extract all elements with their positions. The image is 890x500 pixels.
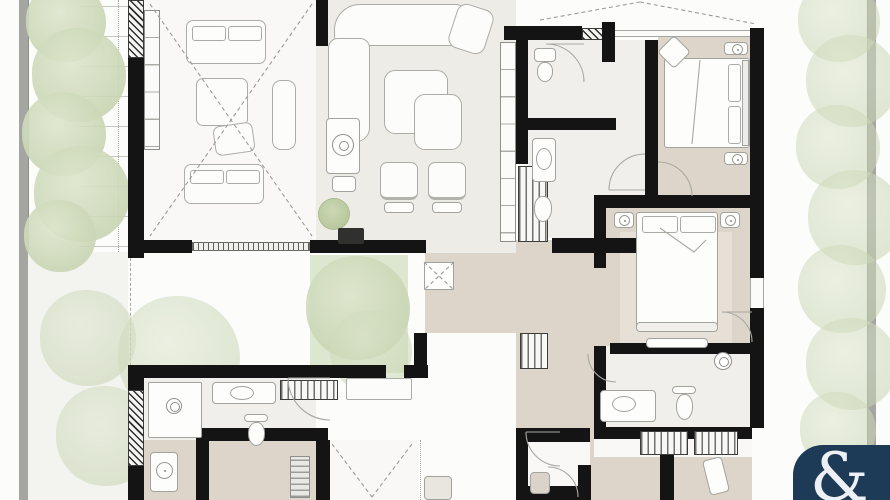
side-table-icon <box>424 476 452 500</box>
wardrobe-hangers <box>520 333 548 369</box>
shelf-icon <box>332 176 356 192</box>
cabinet-run <box>144 10 160 150</box>
void-dotted-edge <box>420 440 422 500</box>
wall-segment <box>602 22 615 62</box>
shower-head-icon <box>714 352 732 370</box>
armchair-icon <box>380 162 418 200</box>
shaft-box <box>424 262 454 290</box>
sofa-cushion <box>226 170 260 184</box>
cistern-icon <box>672 386 696 394</box>
storage-box <box>530 472 550 494</box>
sliding-door-hatch <box>192 242 310 251</box>
ottoman-icon <box>384 202 414 213</box>
pillow-icon <box>728 64 741 102</box>
cistern-icon <box>534 48 556 62</box>
window-hatch <box>128 390 144 466</box>
wall-segment <box>196 441 209 500</box>
lamp-icon <box>732 154 743 165</box>
window-strip <box>615 30 755 37</box>
lamp-icon <box>619 215 630 226</box>
cistern-icon <box>244 414 268 422</box>
decor-target-icon <box>332 134 354 156</box>
wall-segment <box>310 240 426 253</box>
brand-logo: & <box>793 445 890 500</box>
lamp-icon <box>732 44 743 55</box>
wall-segment <box>528 118 616 130</box>
basin-icon <box>612 396 636 412</box>
floor-plan-image: & <box>0 0 890 500</box>
washer-drum-icon <box>156 462 173 479</box>
bench-icon <box>646 338 708 348</box>
toilet-icon <box>676 394 693 420</box>
wall-segment <box>128 378 144 390</box>
wall-segment <box>414 333 427 378</box>
headboard <box>742 60 749 146</box>
wall-segment <box>750 308 764 428</box>
wall-segment <box>516 486 591 500</box>
window-hatch <box>582 28 604 40</box>
wall-segment <box>594 208 606 268</box>
bed-foot-panel <box>636 322 718 332</box>
pillow-icon <box>728 106 741 144</box>
wardrobe-hangers <box>694 431 738 455</box>
plant-icon <box>318 198 350 230</box>
sofa-cushion <box>192 26 226 41</box>
wall-segment <box>516 40 528 164</box>
wall-segment <box>316 0 328 46</box>
wall-segment <box>645 40 658 196</box>
media-unit <box>338 228 364 244</box>
basin-icon <box>536 148 552 170</box>
tree-icon <box>24 200 96 272</box>
wall-segment <box>128 58 144 258</box>
wall-segment <box>750 28 764 278</box>
wall-segment <box>316 440 330 500</box>
wall-segment <box>504 26 582 40</box>
wall-segment <box>594 195 752 208</box>
wall-segment <box>128 240 192 253</box>
pillow-icon <box>680 216 716 233</box>
sofa-cushion <box>228 26 262 41</box>
side-table-icon <box>212 121 256 156</box>
pillow-icon <box>642 216 678 233</box>
basin-icon <box>230 386 254 400</box>
cabinet-run <box>500 42 516 242</box>
wardrobe-hangers <box>640 431 688 455</box>
toilet-icon <box>534 196 552 222</box>
wall-segment <box>128 365 386 378</box>
toilet-icon <box>537 62 553 82</box>
toilet-icon <box>248 422 265 446</box>
shower-drain-icon <box>166 398 182 414</box>
void-room-floor <box>330 440 418 500</box>
door-opening <box>750 278 764 308</box>
coffee-table-icon <box>414 94 462 150</box>
window-hatch <box>128 0 144 58</box>
coffee-table-icon <box>196 78 248 126</box>
shelf-unit <box>346 378 412 400</box>
brand-ampersand-icon: & <box>810 445 869 500</box>
wall-segment <box>516 428 590 442</box>
bench-slats <box>290 456 310 498</box>
sofa-cushion <box>190 170 224 184</box>
wardrobe-hangers <box>280 380 338 400</box>
wall-segment <box>128 466 144 500</box>
lamp-icon <box>725 215 736 226</box>
console-icon <box>272 80 296 150</box>
ottoman-icon <box>432 202 462 213</box>
armchair-icon <box>428 162 466 200</box>
